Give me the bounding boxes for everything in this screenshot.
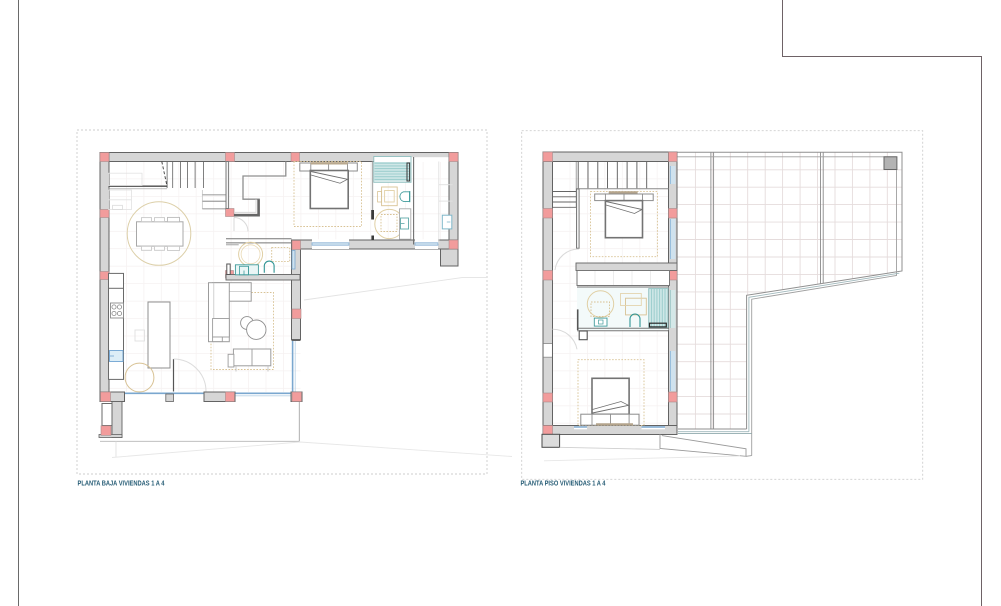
svg-text:PLANTA PISO VIVIENDAS 1 A 4: PLANTA PISO VIVIENDAS 1 A 4 <box>521 481 606 488</box>
svg-text:PLANTA BAJA VIVIENDAS 1 A 4: PLANTA BAJA VIVIENDAS 1 A 4 <box>78 481 165 488</box>
